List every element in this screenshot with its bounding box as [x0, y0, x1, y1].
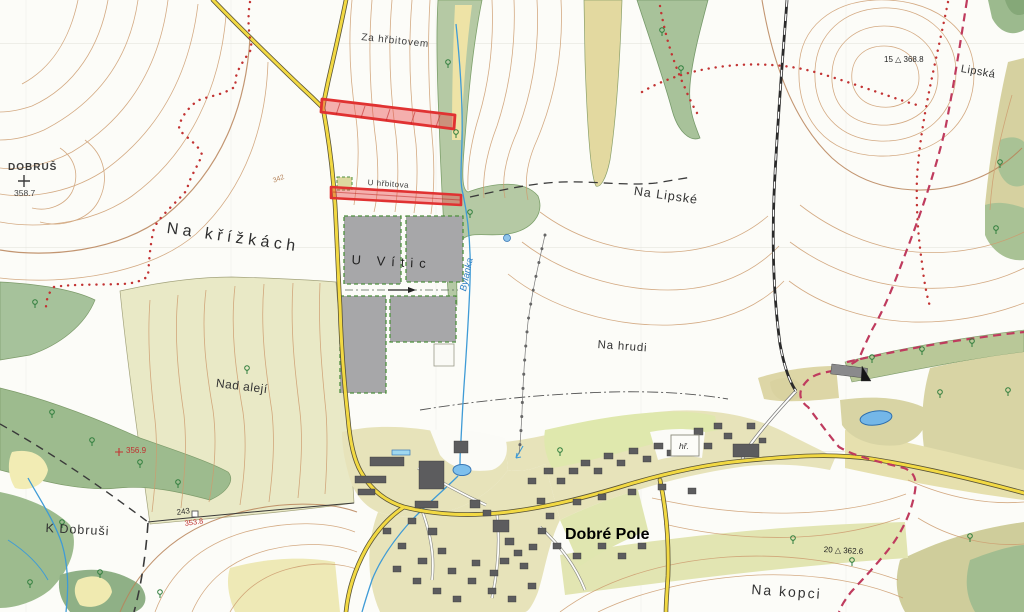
map-canvas — [0, 0, 1024, 612]
boundary-stone-icon — [192, 511, 198, 517]
cemetery-plot — [671, 435, 699, 456]
village-pond — [453, 465, 471, 476]
parcel-lane — [345, 287, 458, 293]
lane-arrow-icon — [408, 287, 416, 293]
railway-line — [773, 0, 796, 391]
utility-line — [519, 235, 545, 454]
trail-dotted-red — [46, 2, 948, 310]
church-building — [493, 520, 509, 532]
topographic-map[interactable]: Za hřbitovem DOBRUŠ 358.7 Na křížkách U … — [0, 0, 1024, 612]
chapel-cross-icon — [18, 175, 30, 187]
cadastral-parcels-gray — [340, 216, 463, 393]
